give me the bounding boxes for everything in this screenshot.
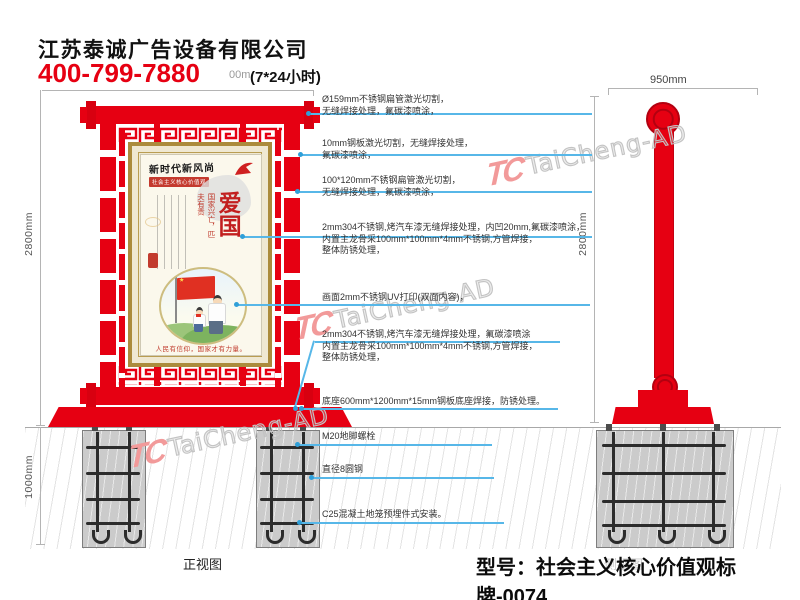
sign-column-left [100, 116, 116, 404]
dimension-line [42, 90, 314, 91]
phone-number: 400-799-7880 [38, 58, 200, 89]
dimension-line [40, 90, 41, 425]
leader-dot [309, 475, 314, 480]
rebar-bar [602, 500, 726, 503]
bottom-beam [95, 387, 305, 405]
leader-line [238, 304, 590, 306]
poster-bottom-text: 人民有信仰，国家才有力量。 [141, 343, 261, 353]
anchor-bolt [660, 424, 666, 431]
leader-dot [295, 442, 300, 447]
rebar-bar [86, 522, 140, 525]
rebar-bar [602, 444, 726, 447]
red-scarf [196, 314, 201, 317]
dimension-label-front-height: 2800mm [23, 212, 35, 256]
annotation-uv-print: 画面2mm不锈钢UV打印(双面内容)， [322, 292, 592, 304]
side-base-step [638, 390, 688, 407]
dimension-line [608, 88, 758, 89]
annotation-baseplate: 底座600mm*1200mm*15mm钢板底座焊接，防锈处理。 [322, 396, 600, 408]
lattice-post [154, 364, 160, 386]
leader-dot [297, 520, 302, 525]
poster: 新时代新风尚 社会主义核心价值观 爱国 国家兴亡，匹夫有责 ★ 人民有信仰，国家… [140, 154, 262, 356]
poster-main-text: 爱国 [215, 191, 239, 253]
beam-end-cap [86, 383, 96, 410]
rebar-bar [86, 498, 140, 501]
side-base-slab [612, 407, 714, 424]
leader-dot [298, 152, 303, 157]
beam-end-cap [86, 101, 96, 129]
red-seal-stamp [148, 253, 158, 268]
beam-end-nub [80, 388, 87, 404]
leader-dot [293, 406, 298, 411]
poster-calligraphy-title: 新时代新风尚 [149, 159, 215, 176]
dimension-tick [590, 422, 599, 423]
leader-line [301, 522, 504, 524]
rebar-bar [602, 472, 726, 475]
lattice-pattern-bottom [118, 366, 282, 385]
rebar-bar [260, 472, 314, 475]
annotation-cabinet-304: 2mm304不锈钢,烤汽车漆无缝焊接处理，内凹20mm,氟碳漆喷涂， 内置主龙骨… [322, 222, 600, 257]
annotation-m20-bolt: M20地脚螺栓 [322, 431, 522, 443]
rebar-bar [712, 432, 715, 532]
beam-end-nub [313, 388, 320, 404]
dimension-tick [36, 544, 45, 545]
figure-man-pants [209, 321, 223, 334]
dimension-line [40, 427, 41, 544]
china-flag: ★ [177, 276, 215, 300]
lattice-post [154, 124, 160, 144]
leader-dot [306, 111, 311, 116]
red-bird-icon [233, 159, 255, 177]
beam-end-nub [80, 107, 87, 123]
leader-line [299, 444, 492, 446]
annotation-tube-159: Ø159mm不锈钢扁管激光切割， 无缝焊接处理，氟碳漆喷涂， [322, 94, 592, 117]
rebar-bar [612, 432, 615, 532]
dimension-tick [36, 425, 45, 426]
lattice-pattern-top [118, 126, 282, 143]
poster-side-text: 国家兴亡，匹夫有责 [195, 193, 216, 241]
anchor-bolt [714, 424, 720, 431]
leader-dot [295, 189, 300, 194]
annotation-plate-10mm: 10mm钢板激光切割，无缝焊接处理， 氟碳漆喷涂， [322, 138, 592, 161]
annotation-body-304: 2mm304不锈钢,烤汽车漆无缝焊接处理，氟碳漆喷涂 内置主龙骨采100mm*1… [322, 329, 600, 364]
annotation-rebar-8: 直径8圆钢 [322, 464, 522, 476]
lattice-post [240, 124, 246, 144]
dimension-label-foundation-depth: 1000mm [23, 455, 35, 499]
service-hours: (7*24小时) [250, 66, 321, 87]
dimension-tick [757, 88, 758, 95]
annotation-c25-concrete: C25混凝土地笼预埋件式安装。 [322, 509, 542, 521]
front-view-label: 正视图 [183, 554, 222, 573]
dimension-tick [313, 90, 314, 96]
model-number: 型号：社会主义核心价值观标牌-0074 [476, 551, 800, 600]
rebar-bar [260, 446, 314, 449]
sign-column-right [284, 116, 300, 404]
poster-body-text-columns [157, 195, 191, 269]
rebar-bar [602, 524, 726, 527]
leader-line [313, 477, 494, 479]
anchor-bolt [606, 424, 612, 431]
dimension-line [594, 96, 595, 422]
rebar-bar [86, 472, 140, 475]
sign-inner-bar-right [275, 130, 281, 392]
dimension-label-side-width: 950mm [650, 74, 687, 86]
cloud-motif [145, 217, 161, 227]
top-beam [95, 106, 305, 124]
figure-child-shorts [194, 324, 203, 332]
rebar-bar [86, 446, 140, 449]
rebar-bar [260, 498, 314, 501]
sign-inner-bar-left [119, 130, 125, 392]
hidden-dimension-fragment: 00m [229, 69, 250, 81]
sign-base [48, 407, 352, 427]
rebar-bar [662, 432, 665, 532]
side-pole [654, 130, 674, 378]
leader-dot [234, 302, 239, 307]
lattice-post [240, 364, 246, 386]
technical-drawing-sheet: 江苏泰诚广告设备有限公司 400-799-7880 00m (7*24小时) 2… [0, 0, 800, 600]
annotation-tube-100x120: 100*120mm不锈钢扁管激光切割， 无缝焊接处理，氟碳漆喷涂， [322, 175, 592, 198]
leader-dot [299, 406, 304, 411]
leader-line [303, 408, 558, 410]
leader-dot [240, 234, 245, 239]
dimension-tick [608, 88, 609, 95]
beam-end-nub [313, 107, 320, 123]
